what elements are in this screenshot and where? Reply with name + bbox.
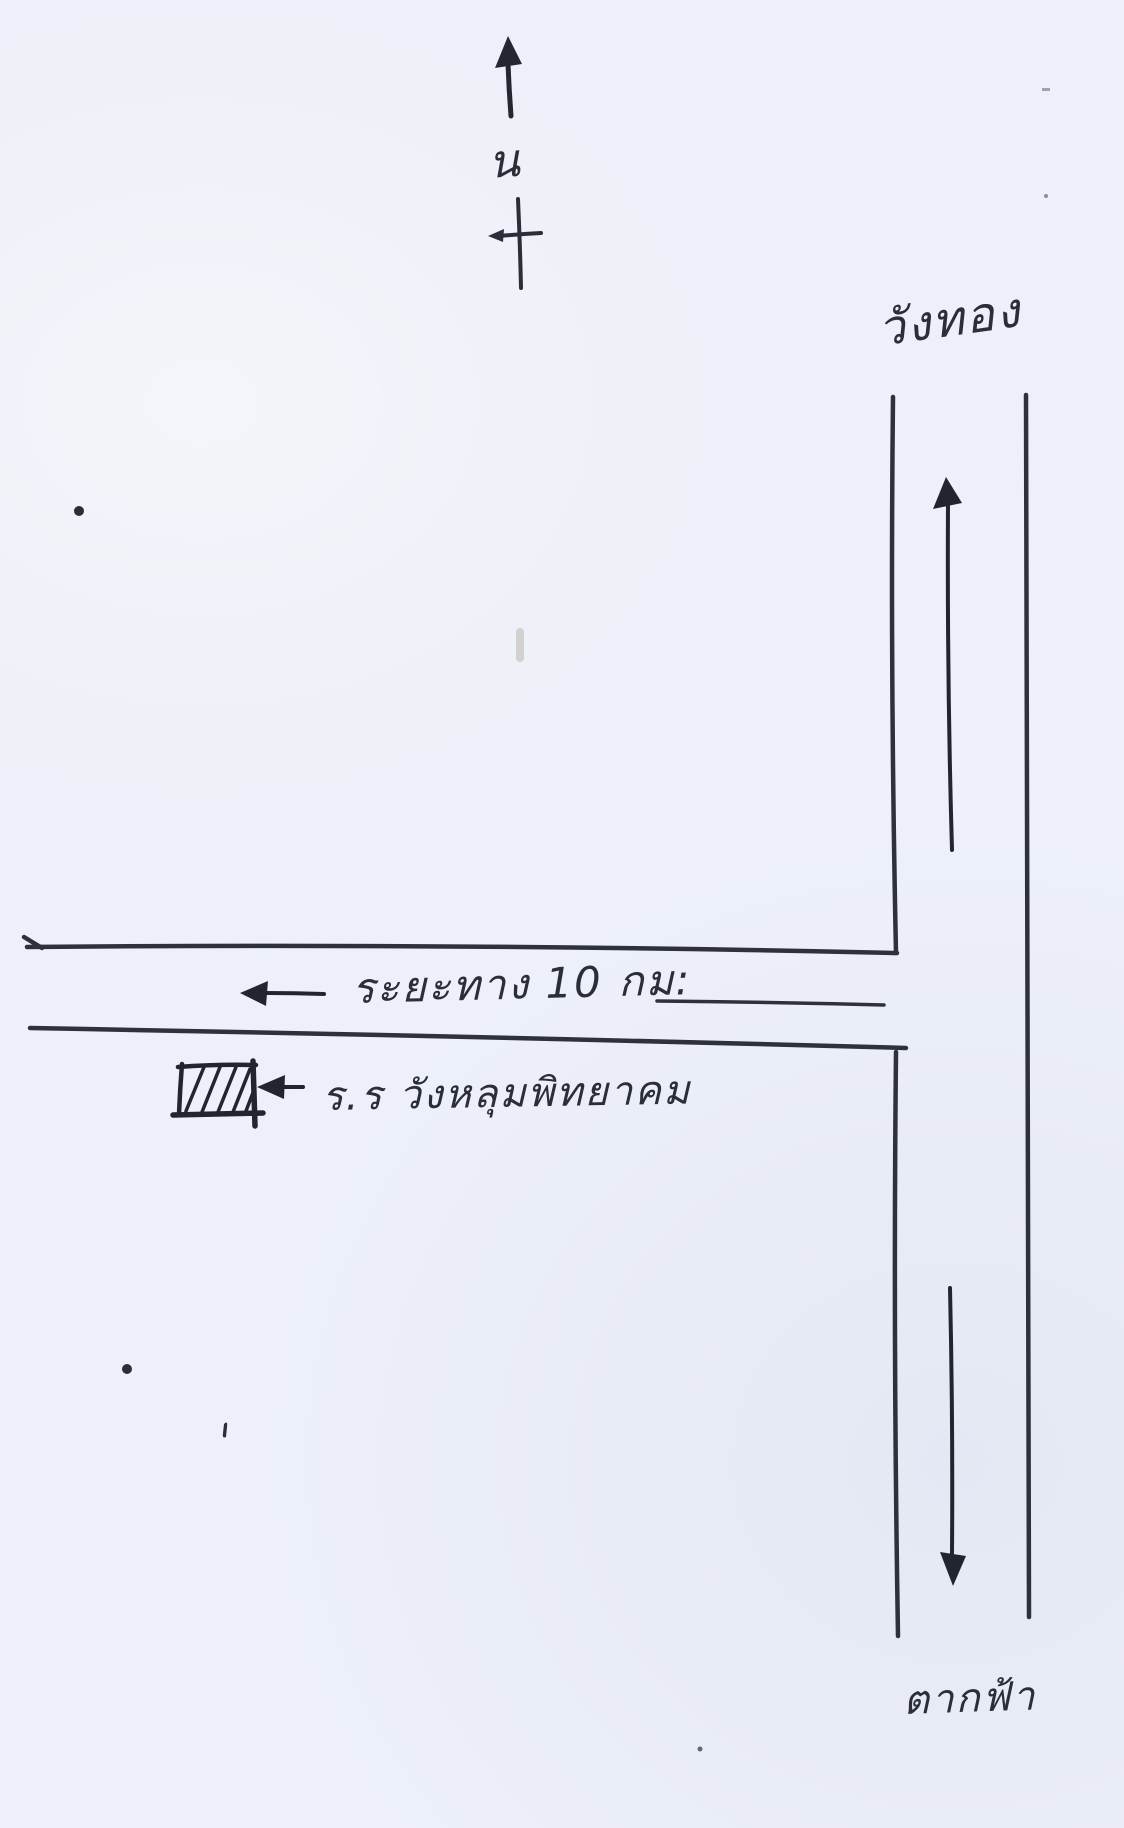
cross-vertical-stroke [518, 199, 521, 288]
hatch-line [202, 1067, 220, 1112]
compass-cross-icon [488, 199, 541, 288]
distance-arrow-icon [240, 981, 324, 1006]
school-box-left [179, 1064, 182, 1114]
scan-speck [122, 1364, 132, 1374]
northbound-arrow-shaft [948, 502, 952, 850]
school-box-hatching [186, 1067, 254, 1112]
southbound-arrow-head [940, 1552, 966, 1586]
distance-arrow-head [240, 981, 268, 1006]
scan-speck [1042, 88, 1050, 91]
cross-horizontal-stroke [500, 233, 541, 236]
hand-drawn-route-map: น วังทอง ตากฟ้า ระยะทาง 10 กม: ร.ร วังหล… [0, 0, 1124, 1828]
destination-label-south: ตากฟ้า [902, 1663, 1038, 1732]
distance-arrow-shaft [267, 993, 324, 994]
scan-speck [223, 1423, 227, 1438]
school-label: ร.ร วังหลุมพิทยาคม [321, 1058, 691, 1128]
distance-label: ระยะทาง 10 กม: [351, 947, 692, 1022]
cross-left-arrow-head [488, 229, 504, 242]
scan-smudge [516, 628, 524, 662]
southbound-arrow-icon [940, 1288, 966, 1586]
scan-speck [74, 506, 84, 516]
southbound-arrow-shaft [950, 1288, 952, 1553]
school-arrow-head [257, 1075, 285, 1099]
north-label: น [485, 124, 523, 199]
horizontal-road-bottom-edge [30, 1028, 906, 1048]
hatch-line [186, 1067, 204, 1111]
vertical-road [892, 395, 1029, 1636]
northbound-arrow-head [933, 477, 962, 509]
scan-speck [698, 1747, 703, 1752]
scan-speck [1044, 194, 1048, 198]
vertical-road-left-edge-lower [895, 1052, 898, 1636]
school-box-top [178, 1065, 256, 1067]
northbound-arrow-icon [933, 477, 962, 850]
vertical-road-right-edge [1026, 395, 1029, 1617]
horizontal-road-top-edge [27, 946, 897, 953]
school-arrow-icon [257, 1075, 303, 1099]
north-arrow-head [495, 36, 522, 68]
hatch-line [218, 1067, 236, 1112]
map-drawing [0, 0, 1124, 1828]
school-marker-icon [173, 1061, 263, 1126]
vertical-road-left-edge-upper [892, 397, 896, 953]
north-arrow-icon [495, 36, 522, 116]
north-arrow-shaft [508, 64, 511, 116]
